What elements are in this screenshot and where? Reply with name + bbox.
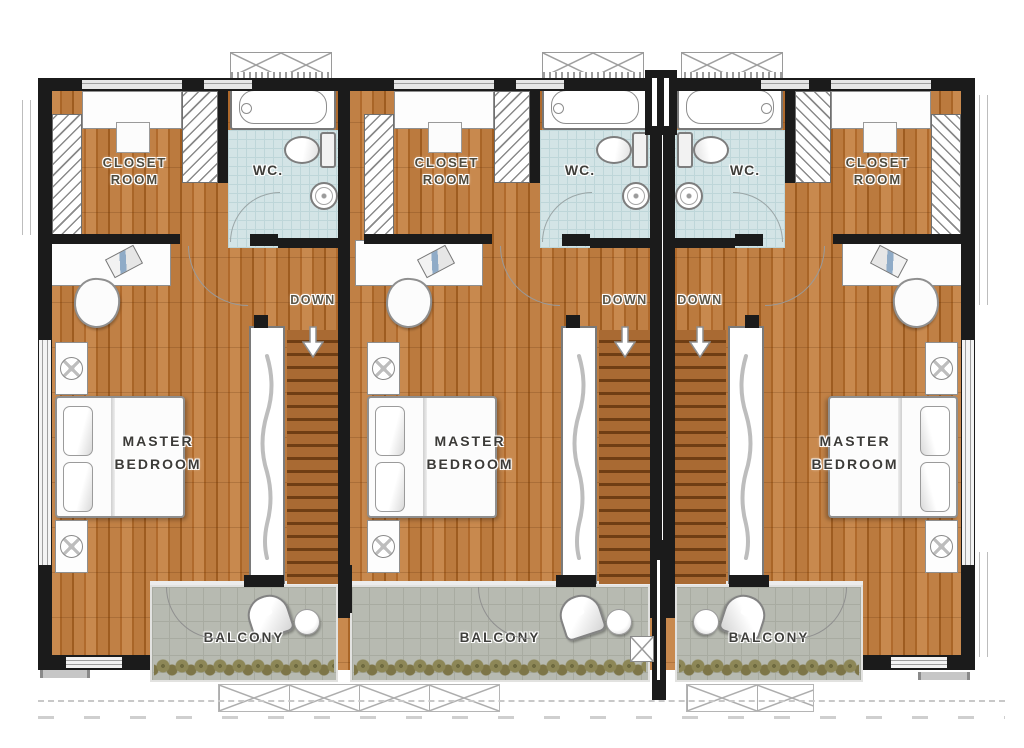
wall-stub bbox=[735, 234, 763, 246]
laptop bbox=[105, 245, 143, 279]
toilet-tank bbox=[632, 132, 648, 168]
window-sill-bottom bbox=[918, 672, 970, 680]
room-label-balcony: BALCONY bbox=[677, 629, 861, 646]
wall-closet bbox=[833, 234, 961, 244]
ottoman bbox=[863, 122, 897, 153]
wall-closet bbox=[364, 234, 492, 244]
window-bottom bbox=[891, 657, 947, 668]
handrail-squiggle bbox=[730, 328, 762, 582]
window-planter-box bbox=[230, 52, 332, 78]
roof-outline-dashed bbox=[38, 700, 1005, 702]
wall-party bbox=[663, 78, 675, 618]
laptop bbox=[417, 245, 455, 279]
ottoman bbox=[428, 122, 462, 153]
window-top bbox=[516, 80, 564, 89]
balcony-divider-wall bbox=[339, 565, 352, 613]
sink-basin bbox=[315, 187, 333, 205]
sink bbox=[675, 182, 703, 210]
stair-handrail bbox=[561, 326, 597, 584]
wall-party bbox=[338, 78, 350, 618]
sink-basin bbox=[680, 187, 698, 205]
room-label-closet: CLOSET ROOM bbox=[819, 154, 937, 188]
down-arrow-icon bbox=[302, 326, 324, 358]
window-sill-left bbox=[22, 100, 31, 235]
unit-1: BALCONY WC. CLOSET ROOM MASTER B bbox=[38, 78, 350, 694]
wall-wc-divider bbox=[218, 91, 228, 183]
laptop bbox=[870, 245, 908, 279]
column-x-marker bbox=[630, 636, 654, 662]
nightstand bbox=[367, 342, 400, 395]
nightstand bbox=[925, 520, 958, 573]
wall-wc-divider bbox=[785, 91, 795, 183]
staircase bbox=[287, 330, 338, 584]
window-top bbox=[204, 80, 252, 89]
pillow bbox=[920, 406, 950, 456]
shaft-slot bbox=[664, 78, 669, 126]
toilet-tank bbox=[320, 132, 336, 168]
planter-plants bbox=[679, 655, 859, 679]
wall-stub bbox=[745, 315, 759, 328]
window-sill-right bbox=[979, 552, 988, 657]
ottoman bbox=[116, 122, 150, 153]
toilet-bowl bbox=[596, 136, 632, 164]
room-label-bedroom: MASTER BEDROOM bbox=[94, 430, 222, 476]
handrail-squiggle bbox=[251, 328, 283, 582]
nightstand bbox=[55, 342, 88, 395]
lamp bbox=[60, 535, 83, 558]
down-arrow-icon bbox=[689, 326, 711, 358]
wall-wc-divider bbox=[530, 91, 540, 183]
room-label-closet: CLOSET ROOM bbox=[388, 154, 506, 188]
window-planter-box bbox=[542, 52, 644, 78]
handrail-squiggle bbox=[563, 328, 595, 582]
bathtub-drain bbox=[553, 103, 564, 114]
lamp bbox=[930, 535, 953, 558]
bathtub-basin bbox=[239, 90, 327, 124]
wall-stub bbox=[566, 315, 580, 328]
window-bottom bbox=[66, 657, 122, 668]
wall-wc-bottom bbox=[675, 238, 735, 248]
lamp bbox=[930, 357, 953, 380]
wall-stub bbox=[250, 234, 278, 246]
unit-3: BALCONY WC. CLOSET ROOM MASTER B bbox=[663, 78, 975, 694]
wall-wc-bottom bbox=[278, 238, 338, 248]
window-planter-box bbox=[681, 52, 783, 78]
sink bbox=[310, 182, 338, 210]
wall-stub bbox=[729, 575, 769, 587]
staircase bbox=[675, 330, 726, 584]
toilet-tank bbox=[677, 132, 693, 168]
nightstand bbox=[55, 520, 88, 573]
nightstand bbox=[925, 342, 958, 395]
window-sill-right bbox=[979, 95, 988, 305]
bathtub-basin bbox=[551, 90, 639, 124]
pillow bbox=[375, 462, 405, 512]
pillow bbox=[920, 462, 950, 512]
window-side bbox=[962, 340, 974, 565]
down-arrow-icon bbox=[614, 326, 636, 358]
awning-truss bbox=[218, 684, 500, 712]
wall-party bbox=[650, 78, 662, 618]
pillow bbox=[375, 406, 405, 456]
window-sill-bottom bbox=[40, 670, 90, 678]
floor-plan: BALCONY WC. CLOSET ROOM MASTER B bbox=[0, 0, 1024, 748]
staircase bbox=[599, 330, 650, 584]
room-label-balcony: BALCONY bbox=[152, 629, 336, 646]
bathtub-drain bbox=[761, 103, 772, 114]
stair-handrail bbox=[728, 326, 764, 584]
room-label-bedroom: MASTER BEDROOM bbox=[406, 430, 534, 476]
shaft-slot bbox=[652, 78, 657, 126]
planter-plants bbox=[354, 655, 646, 679]
pillow bbox=[63, 462, 93, 512]
room-label-closet: CLOSET ROOM bbox=[76, 154, 194, 188]
wall-cavity-line bbox=[657, 560, 660, 680]
window-top bbox=[394, 80, 494, 89]
bathtub-drain bbox=[241, 103, 252, 114]
stair-handrail bbox=[249, 326, 285, 584]
window-top bbox=[761, 80, 809, 89]
toilet-bowl bbox=[693, 136, 729, 164]
planter-plants bbox=[154, 655, 334, 679]
window-side bbox=[39, 340, 51, 565]
lamp bbox=[60, 357, 83, 380]
room-label-balcony: BALCONY bbox=[352, 629, 648, 646]
wall-wc-bottom bbox=[590, 238, 650, 248]
wall-stub bbox=[556, 575, 596, 587]
nightstand bbox=[367, 520, 400, 573]
unit-2: BALCONY WC. CLOSET ROOM MASTER B bbox=[350, 78, 662, 694]
sink bbox=[622, 182, 650, 210]
sink-basin bbox=[627, 187, 645, 205]
lamp bbox=[372, 357, 395, 380]
party-wall-shaft bbox=[645, 70, 677, 135]
window-top bbox=[831, 80, 931, 89]
awning-truss bbox=[686, 684, 814, 712]
toilet-bowl bbox=[284, 136, 320, 164]
window-top bbox=[82, 80, 182, 89]
dash-tick-row bbox=[38, 716, 1005, 719]
room-label-wc: WC. bbox=[548, 162, 612, 179]
wall-closet bbox=[52, 234, 180, 244]
lamp bbox=[372, 535, 395, 558]
room-label-bedroom: MASTER BEDROOM bbox=[791, 430, 919, 476]
pillow bbox=[63, 406, 93, 456]
wall-stub bbox=[254, 315, 268, 328]
wall-stub bbox=[562, 234, 590, 246]
room-label-wc: WC. bbox=[236, 162, 300, 179]
wall-stub bbox=[244, 575, 284, 587]
room-label-wc: WC. bbox=[713, 162, 777, 179]
